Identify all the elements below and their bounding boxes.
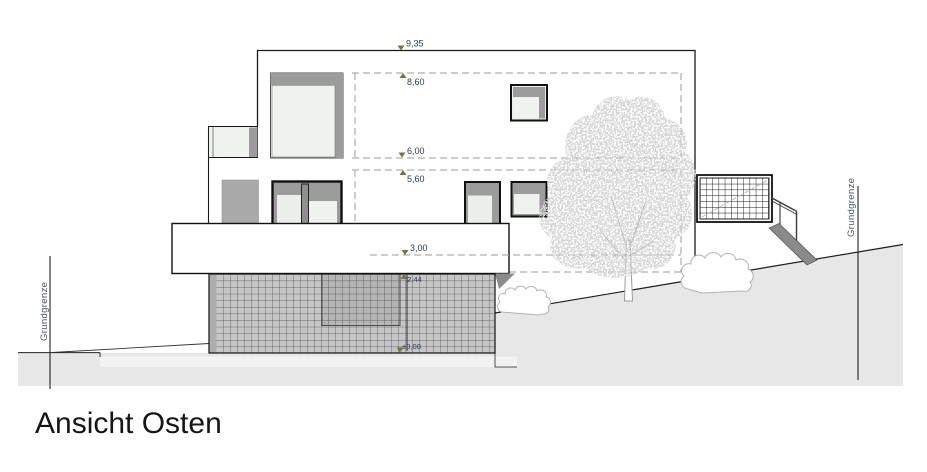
tree-canopy [539, 96, 696, 278]
balcony-slab [172, 224, 509, 274]
tree [539, 96, 696, 301]
basement-wall [209, 274, 495, 353]
boundary-label-left: Grundgrenze [39, 282, 50, 341]
large-window [271, 73, 344, 158]
upper-floor-windows [209, 73, 548, 158]
driveway-band [100, 357, 517, 368]
elevation-drawing-canvas: Grundgrenze Grundgrenze 9,35 8,60 6,00 5… [0, 0, 927, 472]
terrain-rise-line [52, 344, 209, 353]
bush-right [681, 253, 753, 293]
main-floor-openings [222, 180, 547, 225]
level-attic: 8,60 [407, 77, 425, 87]
terrace-door [465, 182, 500, 225]
trellis [697, 175, 772, 222]
level-main-floor: 3,00 [410, 243, 428, 253]
level-upper-ceiling: 5,60 [407, 174, 425, 184]
elevation-drawing: Grundgrenze Grundgrenze 9,35 8,60 6,00 5… [0, 0, 927, 472]
level-basement-top: 2,44 [407, 275, 422, 284]
stair-stringer [769, 224, 817, 266]
drawing-title: Ansicht Osten [35, 407, 222, 440]
solid-door-panel [222, 180, 259, 225]
level-roof: 9,35 [406, 39, 424, 49]
bush-small [498, 286, 551, 315]
level-ground: ±0,00 [402, 342, 421, 351]
small-window [511, 85, 547, 121]
boundary-label-right: Grundgrenze [846, 178, 857, 237]
left-box-window [209, 127, 258, 158]
ramp-shadow [495, 274, 515, 290]
level-upper-floor: 6,00 [407, 146, 425, 156]
double-glass-door [273, 182, 342, 225]
